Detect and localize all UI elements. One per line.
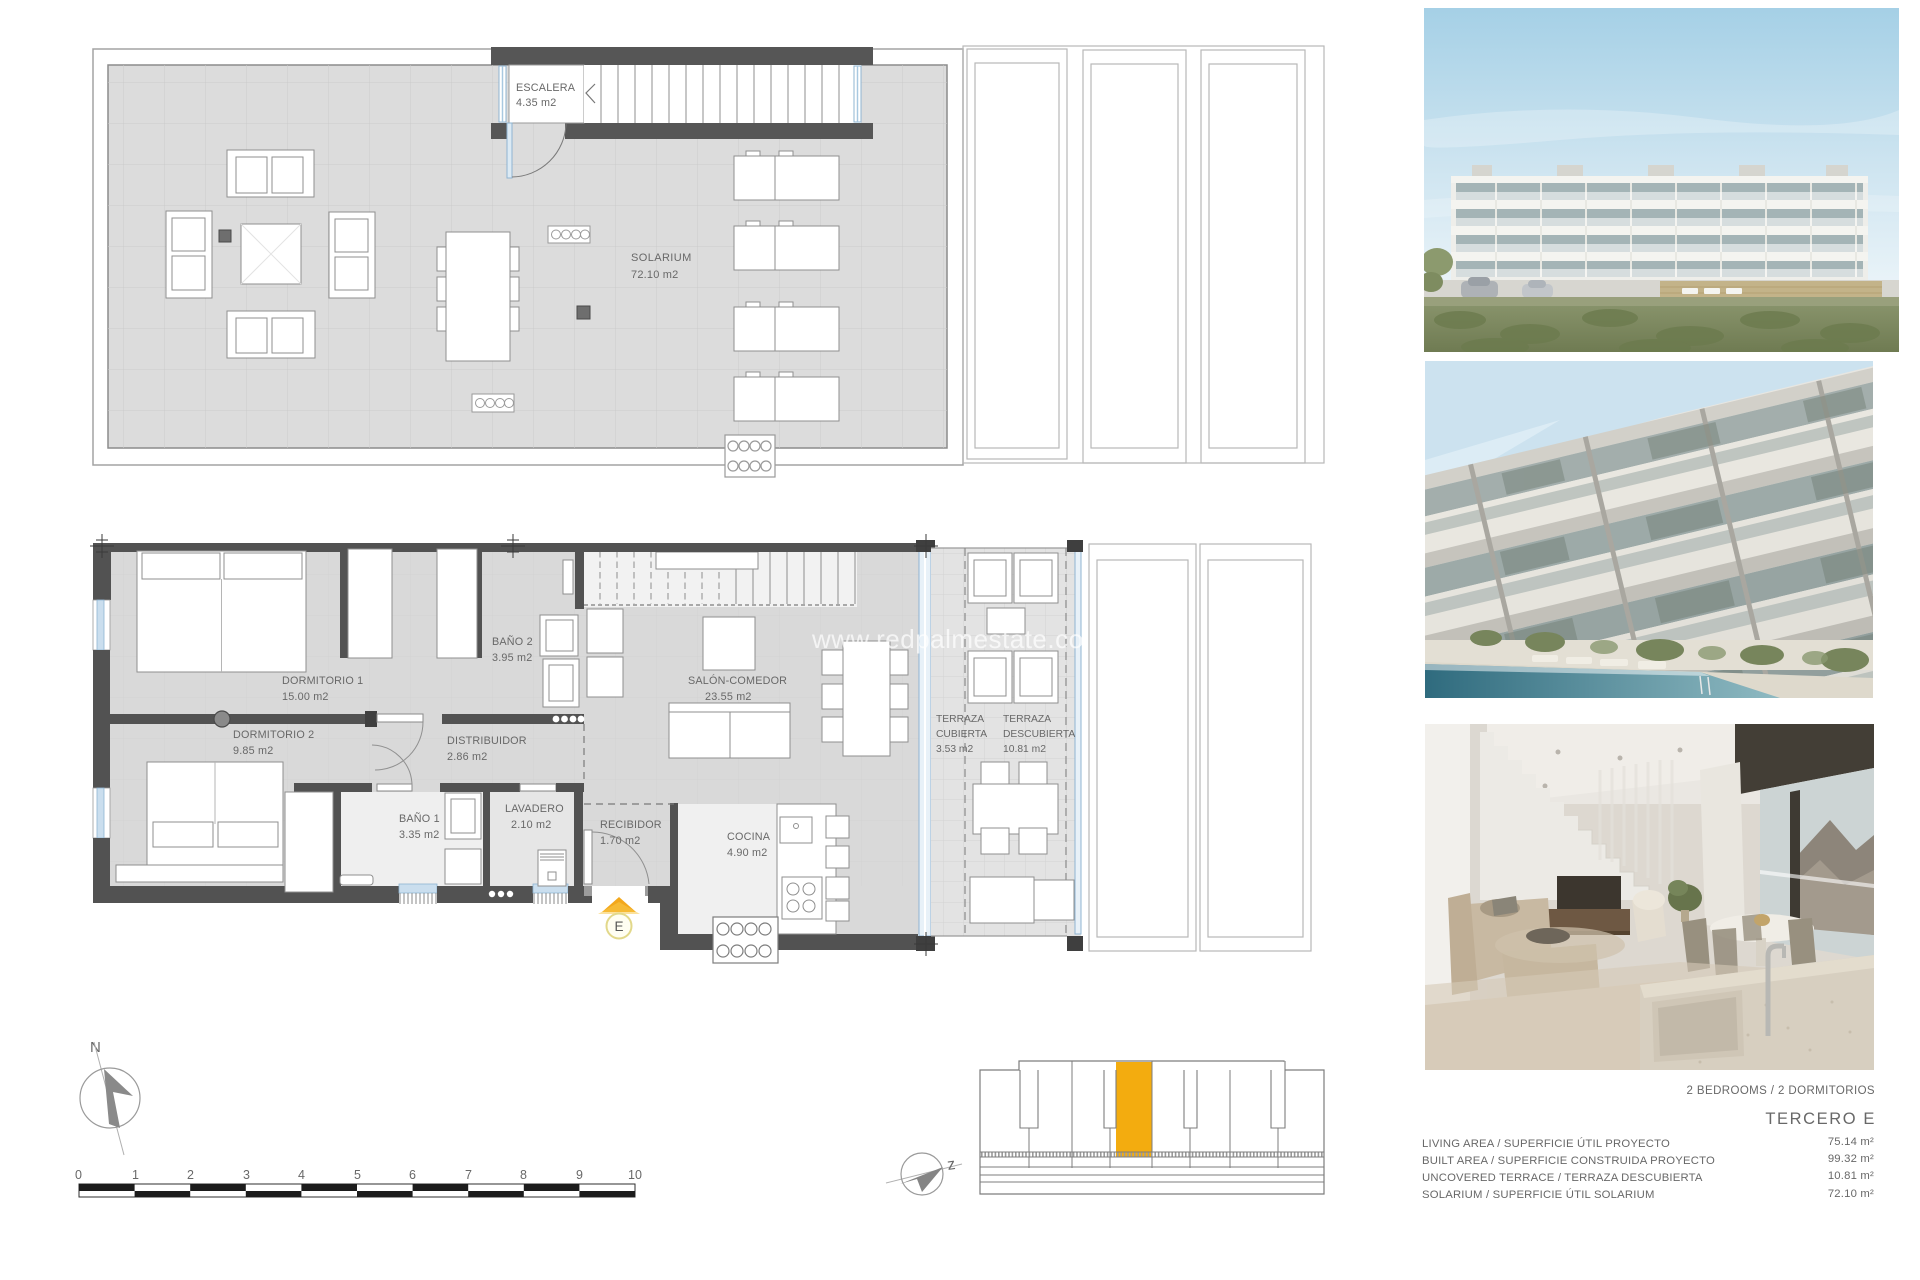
svg-text:DISTRIBUIDOR: DISTRIBUIDOR [447, 735, 527, 747]
svg-text:DESCUBIERTA: DESCUBIERTA [1003, 729, 1075, 740]
svg-text:2: 2 [187, 1168, 194, 1182]
svg-text:9: 9 [576, 1168, 583, 1182]
svg-text:72.10 m2: 72.10 m2 [631, 269, 678, 281]
svg-text:ESCALERA: ESCALERA [516, 82, 576, 94]
svg-text:SOLARIUM: SOLARIUM [631, 252, 692, 264]
svg-text:1.70 m2: 1.70 m2 [600, 835, 640, 847]
svg-text:LIVING AREA / SUPERFICIE ÚTIL: LIVING AREA / SUPERFICIE ÚTIL PROYECTO [1422, 1137, 1670, 1150]
svg-text:BAÑO 1: BAÑO 1 [399, 812, 440, 825]
svg-text:2.86 m2: 2.86 m2 [447, 751, 487, 763]
svg-text:99.32 m²: 99.32 m² [1828, 1153, 1874, 1165]
svg-text:9.85 m2: 9.85 m2 [233, 745, 273, 757]
svg-text:E: E [614, 919, 623, 934]
svg-text:BUILT AREA / SUPERFICIE CONSTR: BUILT AREA / SUPERFICIE CONSTRUIDA PROYE… [1422, 1155, 1715, 1167]
svg-text:CUBIERTA: CUBIERTA [936, 729, 987, 740]
svg-text:3: 3 [243, 1168, 250, 1182]
svg-text:BAÑO 2: BAÑO 2 [492, 635, 533, 648]
svg-text:TERRAZA: TERRAZA [1003, 714, 1051, 725]
svg-text:UNCOVERED TERRACE / TERRAZA DE: UNCOVERED TERRACE / TERRAZA DESCUBIERTA [1422, 1172, 1703, 1184]
svg-text:4.35 m2: 4.35 m2 [516, 97, 556, 109]
svg-text:SALÓN-COMEDOR: SALÓN-COMEDOR [688, 674, 787, 687]
svg-text:www.redpalmestate.co: www.redpalmestate.co [811, 624, 1084, 654]
svg-text:2.10 m2: 2.10 m2 [511, 819, 551, 831]
svg-text:TERRAZA: TERRAZA [936, 714, 984, 725]
svg-text:1: 1 [132, 1168, 139, 1182]
svg-text:6: 6 [409, 1168, 416, 1182]
svg-text:10.81 m2: 10.81 m2 [1003, 744, 1046, 755]
svg-text:COCINA: COCINA [727, 831, 771, 843]
svg-text:4.90 m2: 4.90 m2 [727, 847, 767, 859]
svg-text:15.00 m2: 15.00 m2 [282, 691, 329, 703]
svg-text:2 BEDROOMS / 2 DORMITORIOS: 2 BEDROOMS / 2 DORMITORIOS [1687, 1085, 1875, 1097]
svg-text:23.55 m2: 23.55 m2 [705, 691, 752, 703]
svg-text:0: 0 [75, 1168, 82, 1182]
svg-text:7: 7 [465, 1168, 472, 1182]
svg-text:3.53 m2: 3.53 m2 [936, 744, 973, 755]
svg-text:10.81 m²: 10.81 m² [1828, 1170, 1874, 1182]
svg-text:DORMITORIO 2: DORMITORIO 2 [233, 729, 314, 741]
svg-text:10: 10 [628, 1168, 642, 1182]
svg-text:5: 5 [354, 1168, 361, 1182]
svg-text:8: 8 [520, 1168, 527, 1182]
svg-text:SOLARIUM / SUPERFICIE ÚTIL SOL: SOLARIUM / SUPERFICIE ÚTIL SOLARIUM [1422, 1188, 1655, 1201]
svg-text:4: 4 [298, 1168, 305, 1182]
svg-text:DORMITORIO 1: DORMITORIO 1 [282, 675, 363, 687]
svg-text:3.35 m2: 3.35 m2 [399, 829, 439, 841]
svg-text:RECIBIDOR: RECIBIDOR [600, 819, 662, 831]
svg-text:LAVADERO: LAVADERO [505, 803, 564, 815]
svg-text:TERCERO E: TERCERO E [1765, 1110, 1876, 1128]
svg-text:75.14 m²: 75.14 m² [1828, 1136, 1874, 1148]
svg-text:72.10 m²: 72.10 m² [1828, 1188, 1874, 1200]
svg-text:3.95 m2: 3.95 m2 [492, 652, 532, 664]
